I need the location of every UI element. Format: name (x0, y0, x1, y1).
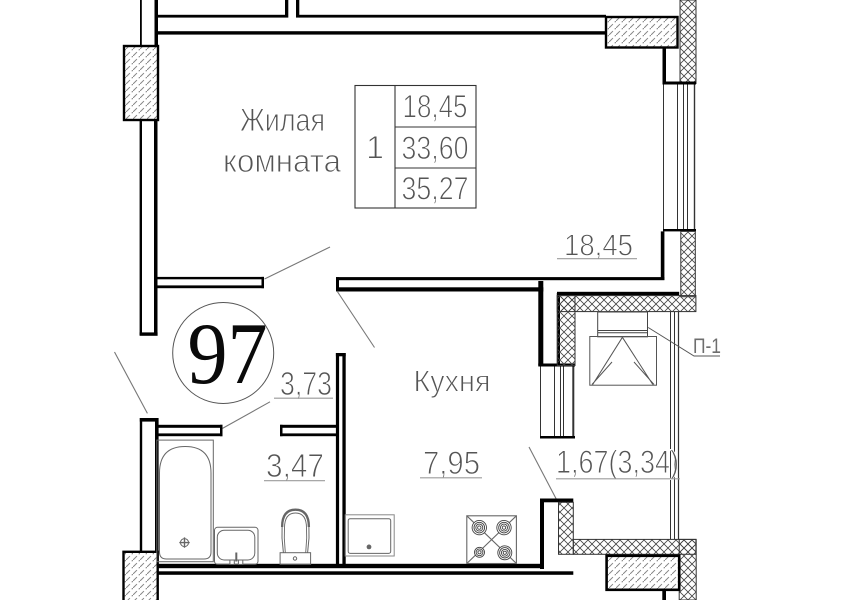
svg-text:1,67(3,34): 1,67(3,34) (556, 444, 679, 480)
svg-text:Жилая: Жилая (240, 102, 325, 138)
svg-text:Кухня: Кухня (414, 364, 491, 399)
svg-text:7,95: 7,95 (423, 445, 480, 481)
svg-text:97: 97 (188, 306, 268, 403)
svg-text:П-1: П-1 (693, 334, 721, 358)
svg-text:3,47: 3,47 (266, 447, 324, 484)
svg-text:18,45: 18,45 (403, 89, 468, 125)
svg-text:комната: комната (223, 143, 341, 179)
svg-text:1: 1 (366, 130, 384, 166)
svg-text:35,27: 35,27 (402, 171, 469, 207)
svg-text:33,60: 33,60 (402, 130, 469, 166)
svg-text:3,73: 3,73 (280, 365, 332, 402)
svg-text:18,45: 18,45 (564, 228, 633, 263)
